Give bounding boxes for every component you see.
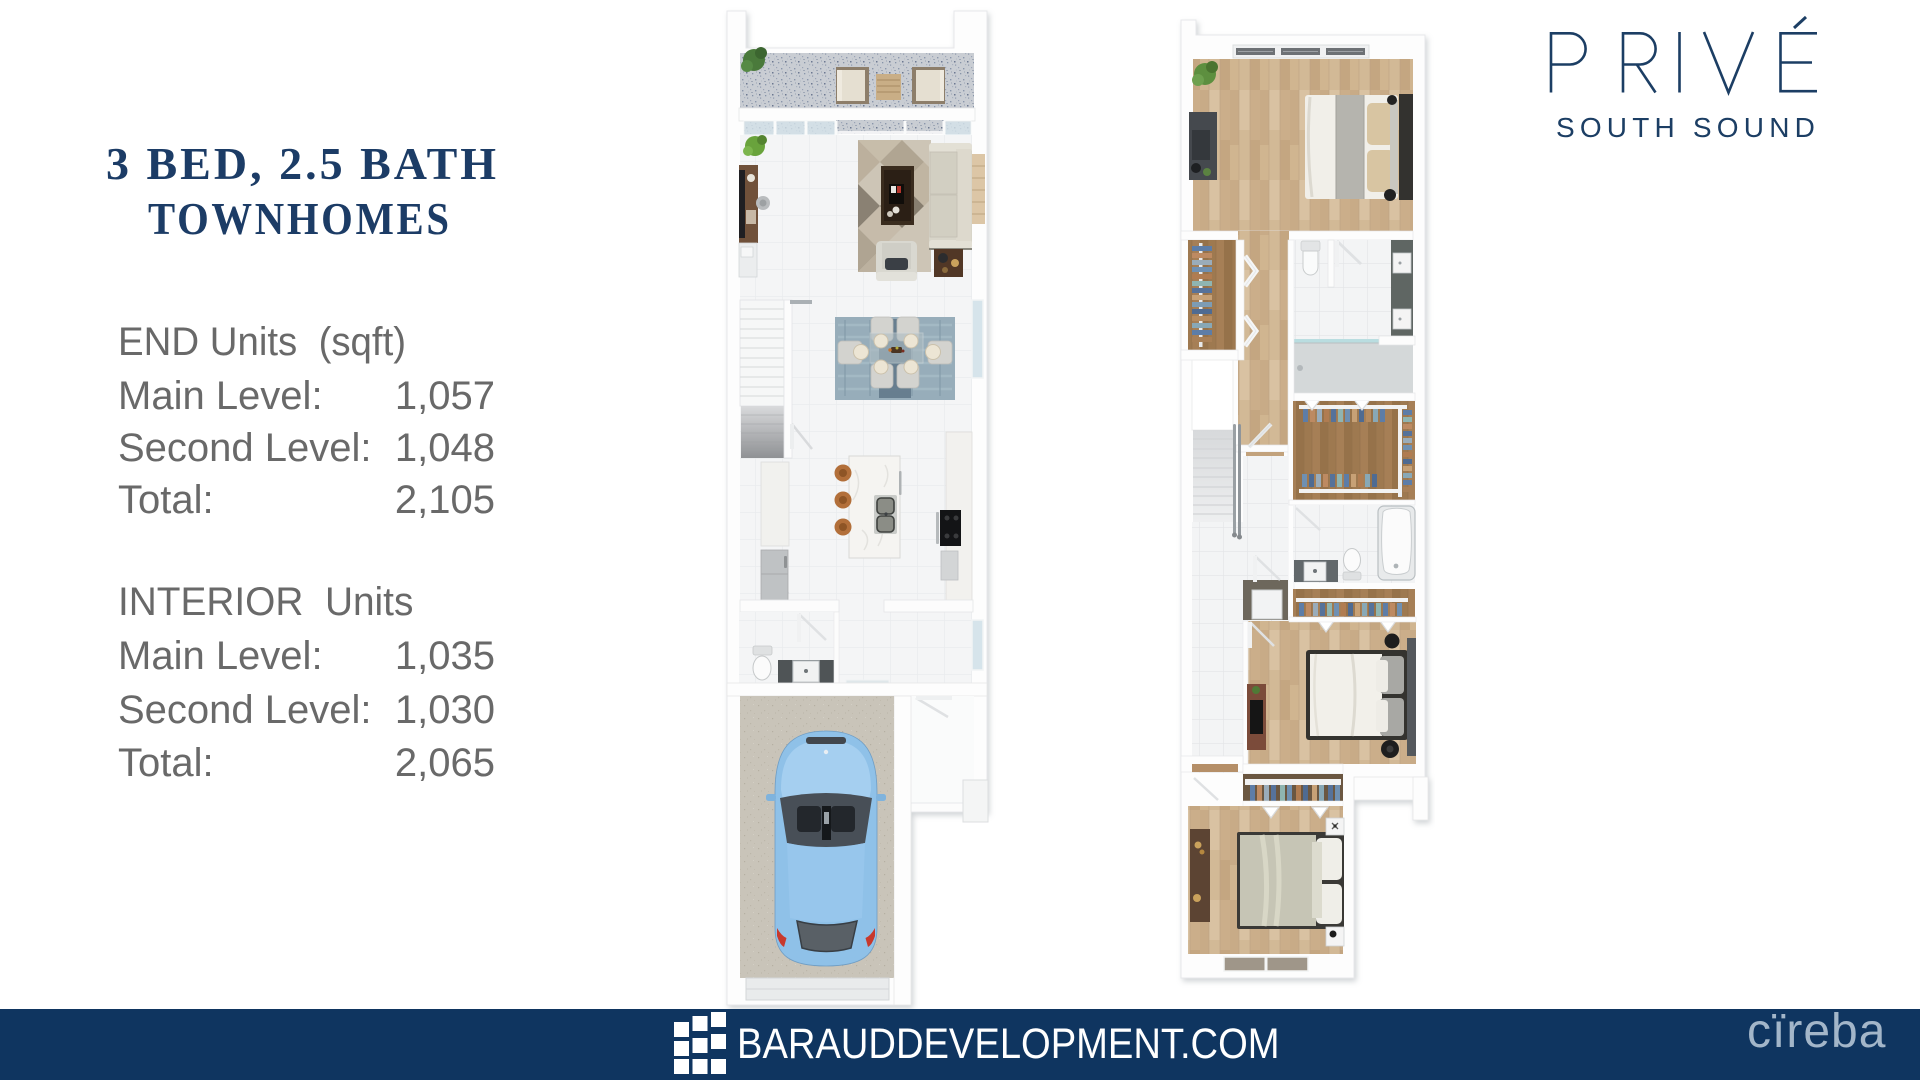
svg-text:SOUTH SOUND: SOUTH SOUND bbox=[1556, 112, 1820, 143]
